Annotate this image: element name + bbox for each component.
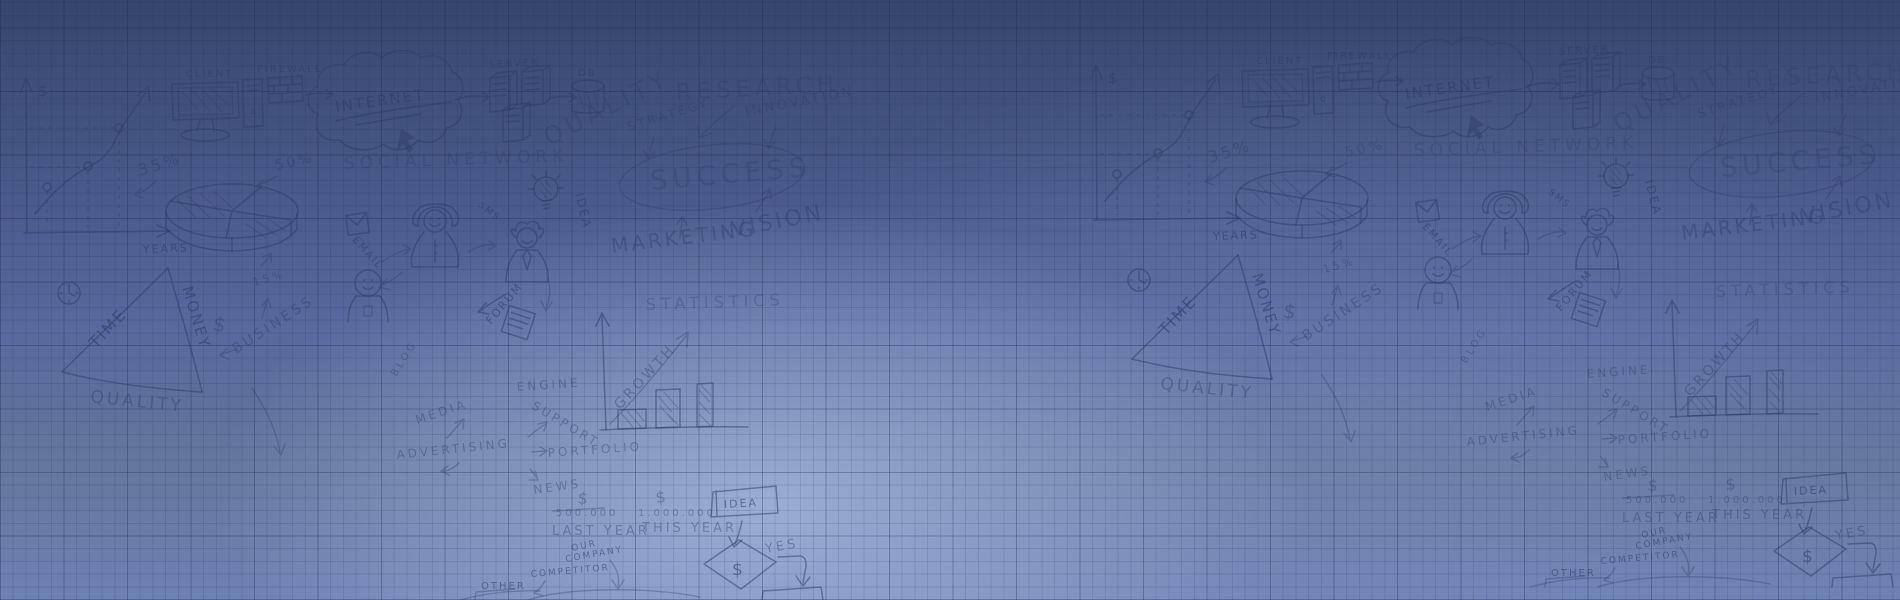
marketing-label: MARKETING [610, 216, 758, 258]
line-chart-doodle: $ YEARS 35% [21, 78, 189, 256]
forum-doodle: FORUM [478, 280, 535, 340]
client-computer-doodle: CLIENT [172, 69, 263, 141]
client-label: CLIENT [186, 69, 233, 80]
pct50-label: 50% [274, 150, 317, 174]
time-money-quality-triangle: TIME MONEY QUALITY $ BUSINESS [62, 268, 317, 455]
news-label: NEWS [532, 476, 582, 497]
time-label: TIME [84, 305, 130, 353]
statistics-label: STATISTICS [645, 290, 784, 314]
social-network-label: SOCIAL NETWORK [343, 146, 568, 174]
pct35-label: 35% [136, 149, 184, 180]
internet-label: INTERNET [334, 86, 426, 116]
years-label: YEARS [142, 241, 189, 256]
internet-cloud-doodle: INTERNET [308, 51, 489, 154]
doodle-tile-repeat [1091, 38, 1900, 588]
this-year-label: THIS YEAR [641, 521, 737, 536]
engine-label: ENGINE [516, 376, 581, 394]
triangle-dollar-label: $ [211, 311, 231, 337]
advertising-label: ADVERTISING [396, 436, 511, 462]
server-label: SERVER [489, 57, 541, 71]
growth-label: GROWTH [611, 341, 679, 412]
this-year-value: 1.000.000 [638, 508, 716, 519]
quality-label: QUALITY [89, 387, 184, 417]
thisyear-dollar-label: $ [655, 487, 670, 507]
portfolio-label: PORTFOLIO [547, 439, 642, 460]
axis-dollar-label: $ [38, 82, 50, 100]
idea-flow-doodle: IDEA $ YES [704, 486, 823, 600]
business-label: BUSINESS [229, 293, 317, 358]
year-comparison-doodle: $ $ 500.000 1.000.000 LAST YEAR THIS YEA… [552, 487, 737, 539]
idea-vertical-label: IDEA [572, 191, 594, 230]
market-share-doodle: OUR COMPANY COMPETITOR OTHER [460, 539, 700, 600]
firewall-label: FIREWALL [257, 64, 322, 75]
doodle-tile: $ YEARS 35% CLIENT [21, 51, 856, 600]
money-label: MONEY [178, 284, 214, 351]
social-network-doodle: SOCIAL NETWORK 50% 15% [251, 146, 568, 289]
competitor-label: COMPETITOR [530, 563, 610, 580]
idea-bulb-doodle: IDEA [529, 171, 595, 230]
sms-label: SMS [476, 200, 502, 223]
firewall-doodle: FIREWALL [257, 64, 333, 103]
email-label: EMAIL [350, 235, 385, 272]
statistics-chart-doodle: STATISTICS GROWTH [596, 290, 785, 430]
hero-banner: $ YEARS 35% CLIENT [0, 0, 1900, 600]
yes-label: YES [763, 536, 800, 557]
pct15-label: 15% [251, 268, 287, 289]
clock-doodle [58, 282, 80, 304]
blog-label: BLOG [389, 339, 419, 378]
success-label: SUCCESS [649, 152, 812, 197]
db-label: DB [578, 68, 597, 79]
doodle-background: $ YEARS 35% CLIENT [0, 0, 1900, 600]
last-year-label: LAST YEAR [552, 524, 650, 539]
idea-box-label: IDEA [723, 496, 758, 511]
diamond-dollar-label: $ [732, 560, 745, 580]
services-words: ENGINE SUPPORT PORTFOLIO MEDIA ADVERTISI… [389, 339, 642, 497]
lastyear-dollar-label: $ [576, 488, 592, 509]
